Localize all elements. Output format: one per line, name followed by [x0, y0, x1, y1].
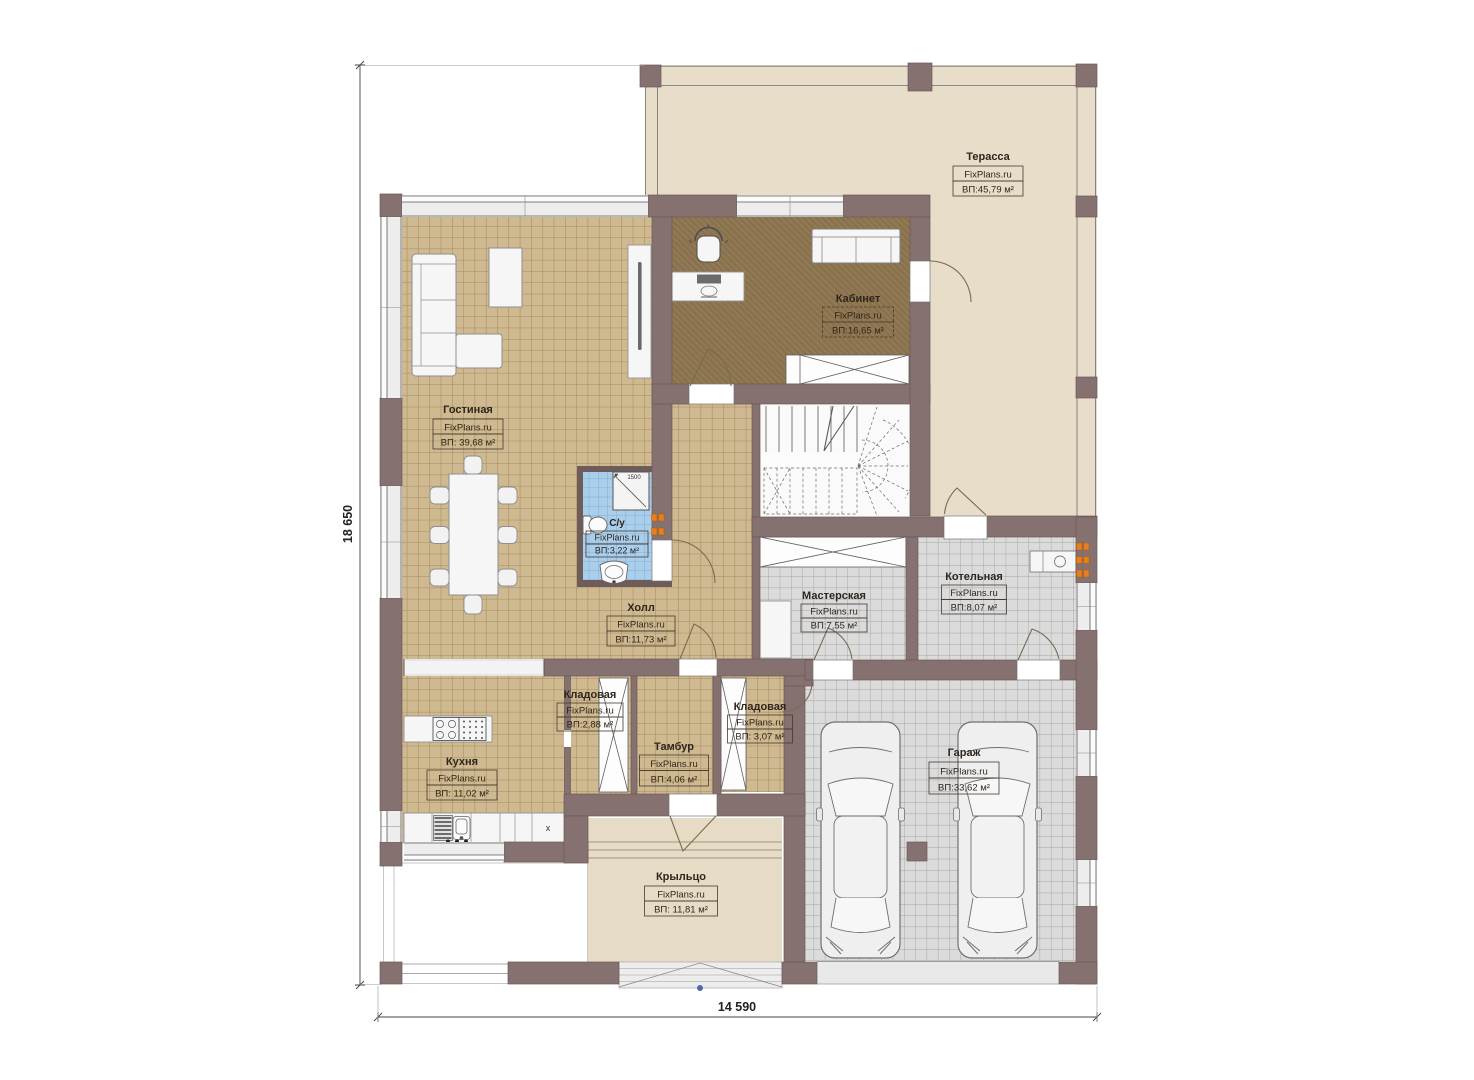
- svg-text:x: x: [546, 823, 551, 833]
- svg-text:FixPlans.ru: FixPlans.ru: [834, 311, 882, 322]
- svg-text:Кладовая: Кладовая: [734, 701, 787, 713]
- svg-text:ВП: 3,07 м²: ВП: 3,07 м²: [735, 732, 784, 743]
- svg-text:ВП:16,65 м²: ВП:16,65 м²: [832, 326, 884, 337]
- svg-text:Холл: Холл: [627, 602, 655, 614]
- svg-text:14 590: 14 590: [718, 1000, 756, 1014]
- svg-text:Терасса: Терасса: [966, 151, 1010, 163]
- svg-text:FixPlans.ru: FixPlans.ru: [617, 620, 665, 631]
- svg-text:18 650: 18 650: [341, 505, 355, 543]
- svg-text:Тамбур: Тамбур: [654, 741, 694, 753]
- svg-text:ВП:3,22 м²: ВП:3,22 м²: [595, 546, 639, 556]
- svg-text:ВП: 11,81 м²: ВП: 11,81 м²: [654, 905, 708, 916]
- svg-text:Мастерская: Мастерская: [802, 590, 866, 602]
- svg-text:ВП:2,88 м²: ВП:2,88 м²: [567, 720, 614, 731]
- svg-text:1500: 1500: [627, 475, 641, 481]
- svg-text:FixPlans.ru: FixPlans.ru: [736, 718, 784, 729]
- svg-text:ВП: 39,68 м²: ВП: 39,68 м²: [441, 438, 496, 449]
- svg-text:Крыльцо: Крыльцо: [656, 871, 706, 883]
- svg-text:ВП:11,73 м²: ВП:11,73 м²: [615, 635, 666, 646]
- svg-text:FixPlans.ru: FixPlans.ru: [810, 607, 858, 618]
- svg-text:FixPlans.ru: FixPlans.ru: [650, 759, 698, 770]
- svg-text:Кабинет: Кабинет: [836, 293, 881, 305]
- svg-text:FixPlans.ru: FixPlans.ru: [950, 588, 998, 599]
- svg-text:FixPlans.ru: FixPlans.ru: [964, 170, 1012, 181]
- svg-text:FixPlans.ru: FixPlans.ru: [438, 774, 486, 785]
- svg-text:Гостиная: Гостиная: [443, 404, 493, 416]
- svg-text:ВП: 11,02 м²: ВП: 11,02 м²: [435, 789, 489, 800]
- svg-text:ВП:45,79 м²: ВП:45,79 м²: [962, 185, 1014, 196]
- svg-text:Кухня: Кухня: [446, 756, 478, 768]
- svg-text:Гараж: Гараж: [948, 747, 981, 759]
- svg-text:FixPlans.ru: FixPlans.ru: [444, 423, 492, 434]
- svg-text:Кладовая: Кладовая: [564, 689, 617, 701]
- svg-text:FixPlans.ru: FixPlans.ru: [594, 533, 639, 543]
- svg-text:С/у: С/у: [609, 518, 625, 529]
- svg-text:FixPlans.ru: FixPlans.ru: [657, 890, 705, 901]
- svg-text:ВП:8,07 м²: ВП:8,07 м²: [951, 603, 998, 614]
- svg-text:FixPlans.ru: FixPlans.ru: [940, 767, 988, 778]
- svg-text:ВП:33,62 м²: ВП:33,62 м²: [938, 783, 990, 794]
- svg-text:Котельная: Котельная: [945, 571, 1003, 583]
- svg-text:FixPlans.ru: FixPlans.ru: [566, 706, 614, 717]
- svg-text:ВП:4,06 м²: ВП:4,06 м²: [651, 775, 698, 786]
- svg-text:ВП:7,55 м²: ВП:7,55 м²: [811, 621, 858, 632]
